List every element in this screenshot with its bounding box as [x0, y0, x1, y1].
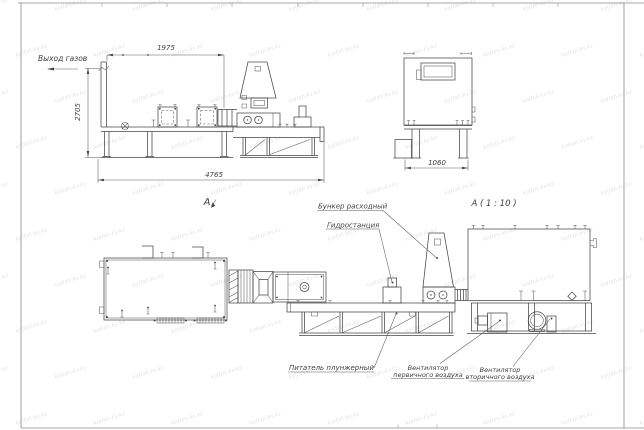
- dim-1975-text: 1975: [157, 44, 175, 52]
- frame-braces: [246, 140, 310, 155]
- anchor-bolts-side: [407, 121, 470, 126]
- detail-top-studs: [472, 225, 587, 229]
- hydro-leader: [326, 229, 392, 282]
- hopper-chute-door: [254, 101, 265, 106]
- dim-1060-text: 1060: [428, 159, 446, 167]
- feeder-leader-dot: [396, 313, 398, 315]
- conveyor: [233, 127, 324, 142]
- side-base-channels: [411, 129, 469, 158]
- hopper-leader: [317, 211, 436, 258]
- trough-feet: [312, 312, 416, 316]
- callout-leaders: [288, 211, 550, 382]
- view-a-label: А: [203, 197, 211, 208]
- housing-elev-dot-2: [442, 294, 443, 295]
- detail-bottom-studs: [519, 291, 587, 301]
- detail-a-view: [467, 225, 597, 333]
- transfer-tube: [455, 290, 468, 301]
- hopper-side-tabs: [242, 96, 247, 109]
- hopper-elev-cap: [435, 239, 441, 245]
- furnace-detail-body: [468, 229, 590, 301]
- side-left-box: [394, 140, 414, 159]
- plan-corner-dot-4: [223, 316, 225, 318]
- mounted-box-2: [197, 105, 217, 127]
- side-base-band: [404, 126, 472, 130]
- dim-4765-text: 4765: [205, 171, 223, 179]
- front-view: [47, 54, 324, 208]
- primary-fan-label-line2: первичного воздуха: [393, 371, 462, 379]
- plan-top-feet: [142, 246, 203, 258]
- detail-base-frame: [467, 303, 596, 334]
- feeder-elevation-view: [287, 233, 468, 336]
- port-dot-1: [247, 119, 248, 120]
- table-legs: [101, 132, 233, 158]
- plan-top-studs: [160, 253, 210, 259]
- support-frame: [240, 138, 318, 158]
- mounted-box-1: [158, 105, 177, 127]
- feeder-support-frame: [299, 312, 454, 336]
- secondary-fan-label-line2: вторичного воздуха: [466, 373, 535, 381]
- dimension-2705: [85, 68, 101, 158]
- gas-outlet-arrowhead: [47, 68, 54, 71]
- feeder-frame-braces: [305, 316, 449, 333]
- side-opening-tab: [417, 70, 422, 80]
- anchor-diamond: [568, 292, 576, 300]
- feeder-trough: [287, 303, 455, 312]
- hopper-elevation: [423, 233, 454, 287]
- feeder-barrel: [218, 110, 237, 127]
- table-valve-cross: [122, 123, 128, 129]
- plan-hopper-nested: [253, 272, 273, 304]
- gas-outlet-label: Выход газов: [38, 54, 87, 63]
- plan-ribbed-plate: [238, 270, 253, 303]
- secondary-stack: [294, 106, 311, 127]
- detail-a-title: А ( 1 : 10 ): [470, 199, 516, 209]
- hopper-callout-label: Бункер расходный: [318, 203, 388, 211]
- gas-duct: [101, 62, 107, 127]
- plan-right-box: [273, 272, 326, 302]
- dim-2705-text: 2705: [74, 103, 82, 121]
- view-a-arrow: [211, 200, 216, 208]
- table-top: [101, 127, 233, 132]
- side-view: [394, 52, 476, 171]
- gas-duct-break: [99, 66, 109, 71]
- plan-left-pads: [100, 261, 105, 314]
- housing-elev-dot-1: [430, 294, 431, 295]
- hopper-leader-dot: [436, 257, 438, 259]
- plan-corner-dot-1: [106, 260, 108, 262]
- dimension-1975: [107, 54, 224, 108]
- hopper-front: [240, 62, 276, 98]
- plan-corner-dot-3: [106, 316, 108, 318]
- plan-flange-hatch: [229, 271, 238, 303]
- drawing-sheet: kotlah-kv.kzkotlah-kv.kzkotlah-kv.kzkotl…: [0, 0, 644, 430]
- port-dot-2: [258, 119, 259, 120]
- plan-corner-dot-2: [223, 260, 225, 262]
- plan-view: [100, 246, 327, 323]
- plan-position-flags: [107, 262, 217, 317]
- plan-bottom-racks: [154, 318, 228, 323]
- table-studs: [152, 120, 191, 127]
- primary-air-fan: [475, 313, 507, 332]
- plan-inner-rect: [106, 260, 225, 318]
- plan-ribs: [241, 270, 250, 303]
- side-top-dims: [404, 52, 472, 55]
- hydro-callout-label: Гидростанция: [327, 222, 379, 230]
- hopper-top-cap: [255, 67, 261, 72]
- hopper-chute: [251, 98, 268, 108]
- drawing-canvas: Выход газов 1975 2705 4765 А 1060 А ( 1 …: [0, 0, 644, 430]
- side-opening-inner: [424, 66, 452, 77]
- furnace-body-side: [404, 58, 472, 125]
- lifting-hook: [590, 239, 597, 248]
- feeder-callout-label: Питатель плунжерный: [289, 364, 374, 372]
- side-opening-outer: [421, 63, 455, 80]
